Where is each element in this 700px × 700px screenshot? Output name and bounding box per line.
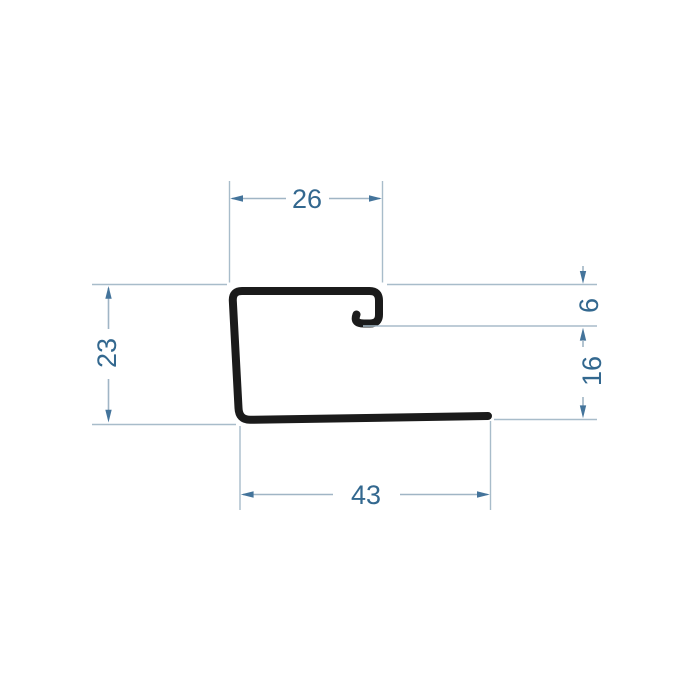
arrow-up-icon xyxy=(580,328,586,341)
profile-technical-drawing: 26 23 6 16 xyxy=(0,0,700,700)
profile-path xyxy=(233,291,488,420)
arrow-right-icon xyxy=(477,491,490,497)
dimension-left-height: 23 xyxy=(92,285,236,425)
arrow-left-icon xyxy=(230,195,243,201)
arrow-down-icon xyxy=(580,405,586,418)
dimension-top-width: 26 xyxy=(230,181,383,283)
dim-label-top-width: 26 xyxy=(292,184,322,214)
arrow-right-icon xyxy=(369,195,382,201)
arrow-up-icon xyxy=(105,286,111,299)
dim-label-bottom-width: 43 xyxy=(351,480,381,510)
dim-label-right-height: 16 xyxy=(577,356,607,386)
drawing-canvas: 26 23 6 16 xyxy=(0,0,700,700)
dimension-lip-depth: 6 xyxy=(363,266,604,326)
dimension-bottom-width: 43 xyxy=(240,421,491,510)
profile-outline xyxy=(233,291,488,420)
dim-label-left-height: 23 xyxy=(92,338,122,368)
arrow-down-icon xyxy=(105,410,111,423)
dimension-right-height: 16 xyxy=(494,328,607,420)
arrow-down-icon xyxy=(580,271,586,284)
dim-label-lip-depth: 6 xyxy=(574,298,604,313)
arrow-left-icon xyxy=(241,491,254,497)
